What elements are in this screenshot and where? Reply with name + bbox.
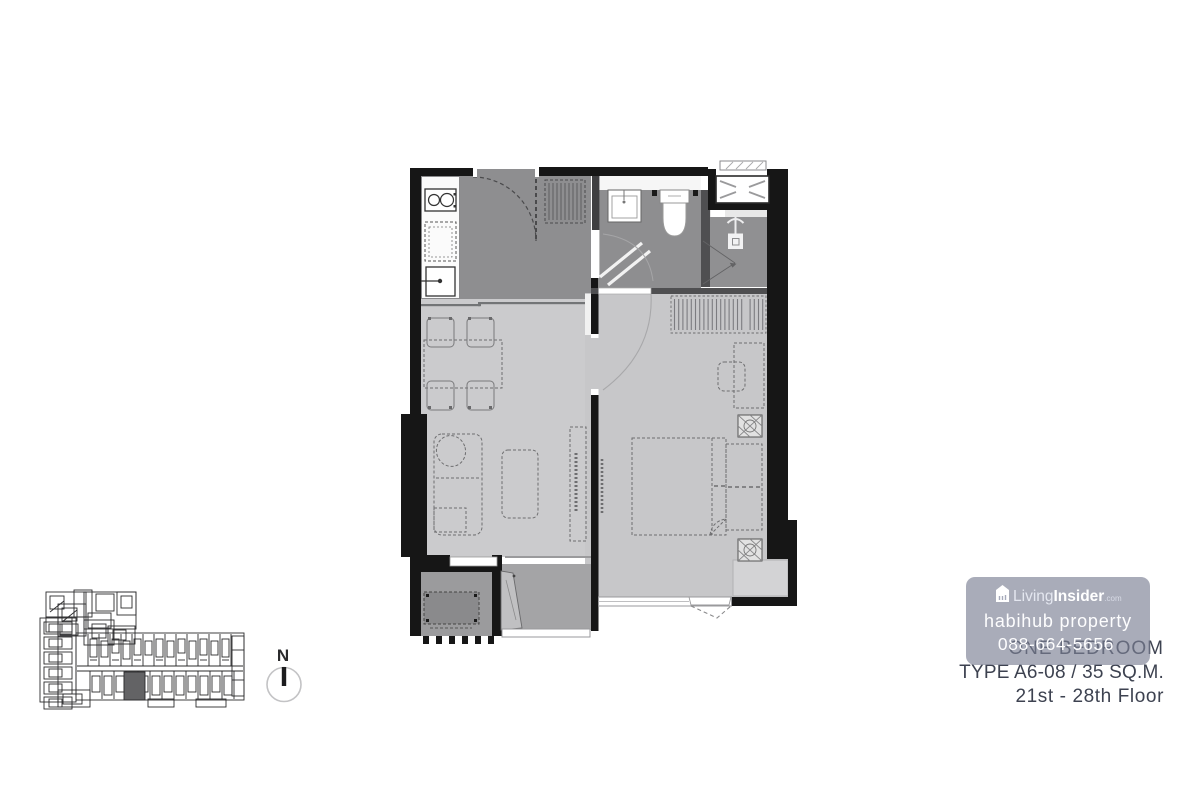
svg-text:21st - 28th Floor: 21st - 28th Floor	[1015, 686, 1164, 707]
svg-text:habihub property: habihub property	[984, 611, 1132, 631]
svg-text:N: N	[277, 646, 289, 665]
svg-text:TYPE A6-08 / 35 SQ.M.: TYPE A6-08 / 35 SQ.M.	[959, 662, 1164, 683]
svg-text:088-664-5656: 088-664-5656	[998, 634, 1114, 654]
